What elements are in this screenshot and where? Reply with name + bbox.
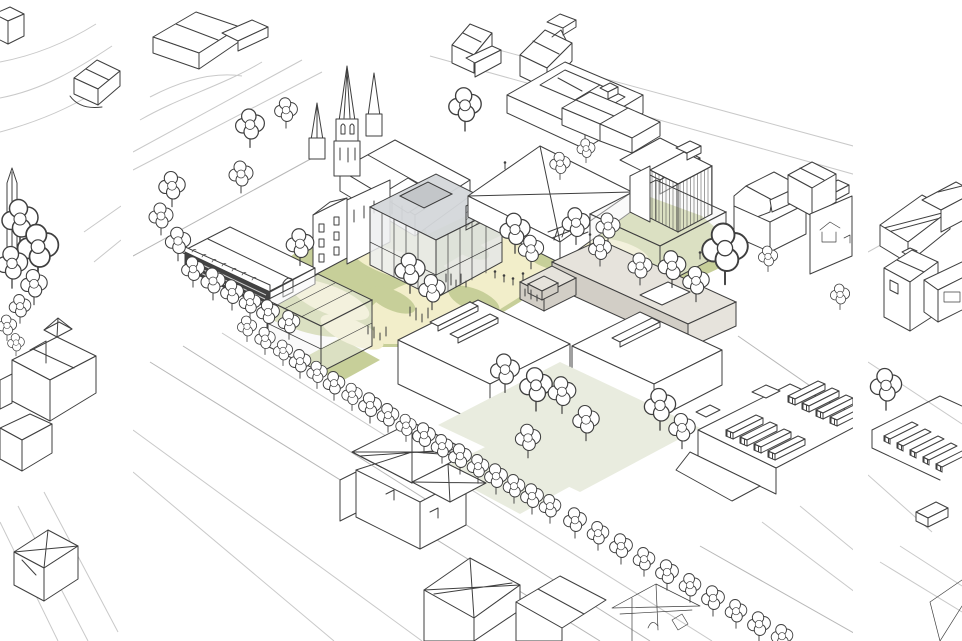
right-gutter xyxy=(853,0,868,641)
right-context-panel xyxy=(868,182,962,641)
artwork xyxy=(0,0,962,641)
left-context-panel xyxy=(0,7,121,641)
left-gutter xyxy=(121,0,133,641)
right-small-box xyxy=(916,502,948,527)
right-bottom-sketch xyxy=(930,580,962,641)
top-left-house xyxy=(153,12,268,69)
left-top-building xyxy=(0,7,24,44)
left-gable-house xyxy=(14,530,78,601)
church-twin-tower xyxy=(366,73,382,136)
church-main-spire xyxy=(334,66,360,176)
bottom-left-church xyxy=(340,422,486,549)
left-white-box-building xyxy=(0,414,52,471)
right-tree xyxy=(870,369,901,411)
main-panel xyxy=(133,12,868,641)
masterplan-illustration xyxy=(0,0,962,641)
louvre-roof-building xyxy=(676,381,868,501)
church-small-spire xyxy=(309,103,325,159)
